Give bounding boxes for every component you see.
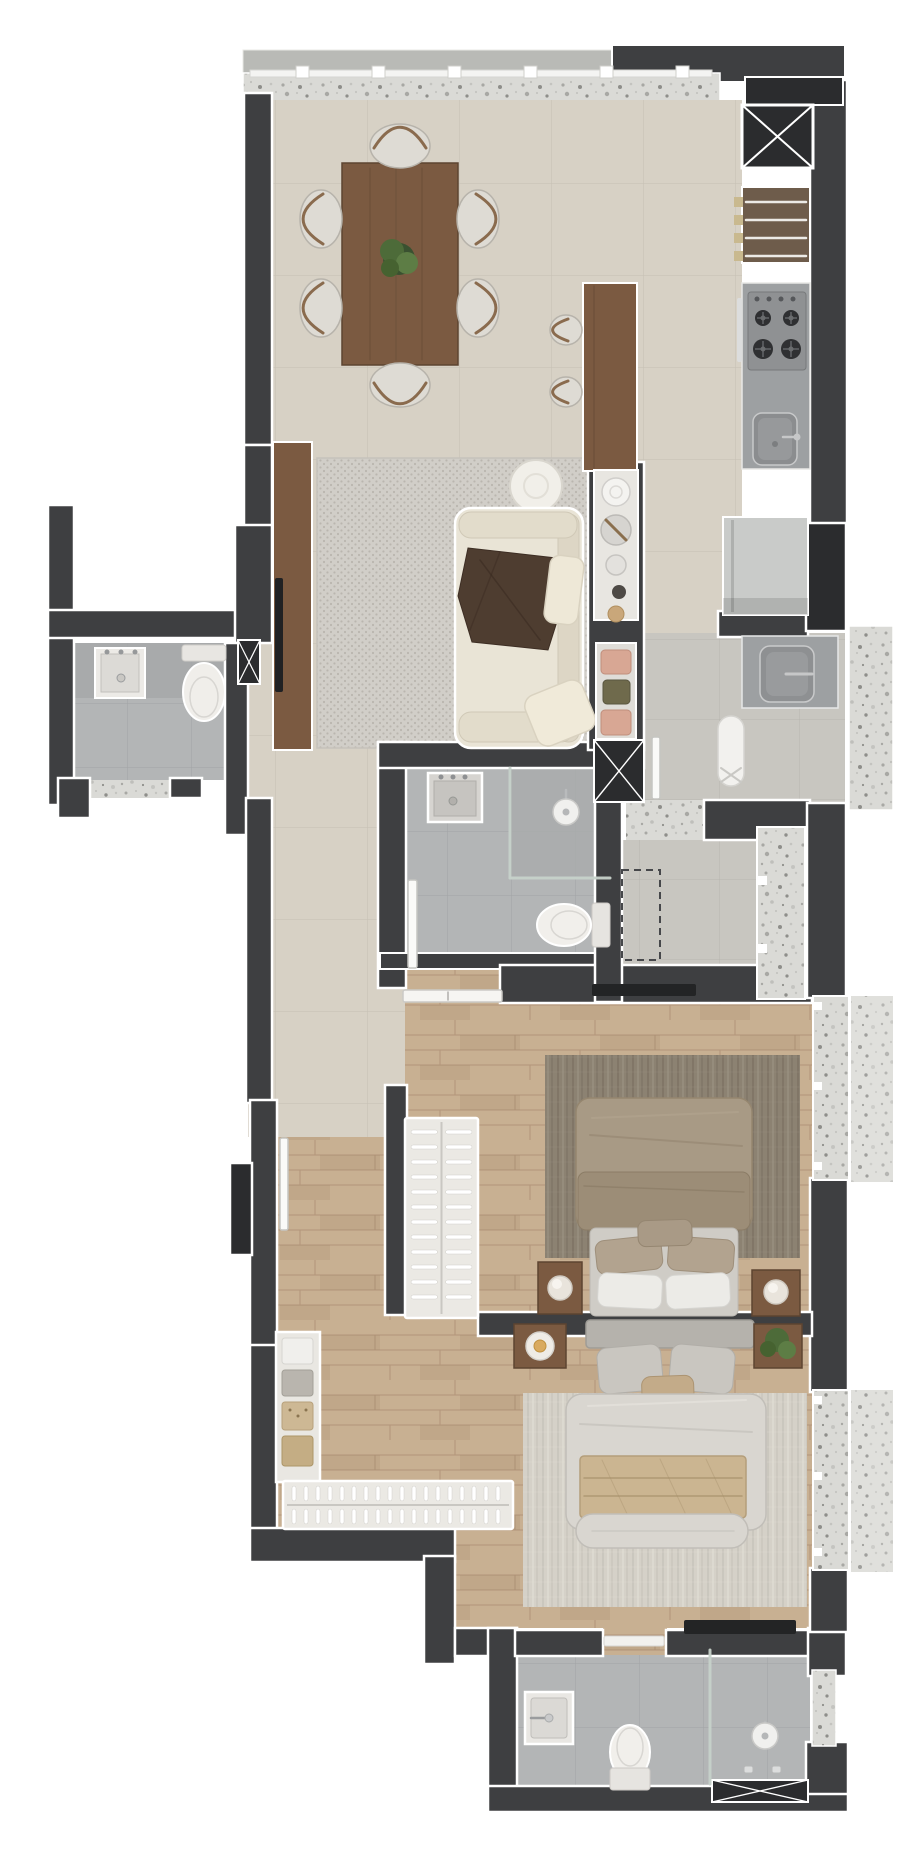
lavabo-faucet-1: [105, 650, 110, 655]
wall-dark-cabinet: [806, 523, 846, 631]
burner-1: [755, 310, 771, 326]
burner-2: [783, 310, 799, 326]
wall-bed2-left: [250, 1345, 277, 1535]
burner-4: [781, 339, 801, 359]
clothes-stack-dot-2: [297, 1415, 300, 1418]
bath3-shower-dot: [762, 1733, 769, 1740]
side-pouf: [510, 460, 562, 512]
window-mullion-1: [296, 66, 309, 78]
wall-right-bed2-low: [810, 1568, 848, 1632]
island-counter: [583, 283, 637, 471]
wall-bed2-bottom-1: [515, 1630, 603, 1656]
clothes-stack-dot-1: [289, 1409, 292, 1412]
oven-handle: [737, 298, 742, 362]
dining-chair-right-2: [457, 279, 499, 337]
dining-chair-right-1: [457, 190, 499, 248]
shaft-bath3: [712, 1780, 808, 1802]
floor-plan-page: [0, 0, 900, 1869]
wall-elevator-lobby: [745, 77, 843, 105]
tv-bed1: [592, 984, 696, 996]
plant-bed2-b: [778, 1341, 796, 1359]
window-bed2-tick-3: [813, 1548, 822, 1556]
kitchen-sink-basin: [758, 418, 792, 460]
wall-lavabo-bottom-left: [58, 778, 90, 818]
stove-knob-2: [767, 297, 772, 302]
vent-tab-1: [734, 197, 743, 207]
closet-rack-bed1: [405, 1118, 478, 1318]
wall-bath3-right-top: [808, 1628, 846, 1676]
balcony-window-band: [250, 70, 712, 77]
wall-lavabo-left: [48, 505, 74, 805]
bath2-toilet-tank: [592, 903, 610, 947]
window-bed2-tick-1: [813, 1396, 822, 1404]
towel-pink-2: [601, 710, 631, 735]
shaft-mid: [594, 740, 644, 802]
corridor-door-leaf: [652, 737, 660, 799]
window-bed1-tick-1: [813, 1002, 822, 1010]
floor-plan: [0, 0, 900, 1869]
window-bed1-tick-3: [813, 1162, 822, 1170]
fridge-shadow: [723, 598, 808, 615]
wall-left-mid: [244, 445, 272, 533]
lavabo-drain: [117, 674, 125, 682]
jar-dark: [612, 585, 626, 599]
bath3-toilet-tank: [610, 1768, 650, 1790]
stove-knob-3: [779, 297, 784, 302]
stove: [748, 292, 806, 370]
light-well: [757, 827, 805, 999]
vent-louver: [742, 187, 810, 263]
bed1-pillow-white-left: [597, 1272, 663, 1309]
stove-knob-4: [791, 297, 796, 302]
bed1-pillow-small: [638, 1219, 693, 1247]
bath2-shower-dot: [563, 809, 570, 816]
bath2-door-leaf: [408, 880, 417, 968]
dining-chair-bottom: [370, 363, 430, 407]
plant-bed2-c: [760, 1341, 776, 1357]
wall-hall-left: [246, 798, 272, 1103]
bath3-valve-1: [744, 1766, 753, 1773]
window-bed1-tick-2: [813, 1082, 822, 1090]
window-bed2-tick-2: [813, 1472, 822, 1480]
bowl-small: [606, 555, 626, 575]
bath2-toilet-bowl: [537, 904, 591, 946]
lavabo-toilet-tank: [182, 645, 226, 661]
window-mullion-6: [676, 66, 689, 78]
lamp-bed1-left-highlight: [552, 1279, 562, 1289]
outer-sill-bed2: [851, 1390, 893, 1572]
wall-closet-left: [595, 800, 622, 1002]
window-mullion-3: [448, 66, 461, 78]
window-mullion-4: [524, 66, 537, 78]
clothes-stack-tan: [282, 1436, 313, 1466]
sliding-door-bed1: [403, 990, 502, 1002]
wall-bed1-left: [385, 1085, 407, 1315]
lamp-bed1-right-highlight: [768, 1283, 778, 1293]
service-window: [849, 626, 893, 810]
clothes-stack-gray: [282, 1370, 313, 1396]
light-well-tick-1: [757, 876, 767, 885]
sofa-arm-top: [459, 512, 577, 538]
window-mullion-2: [372, 66, 385, 78]
jar-tan: [608, 606, 624, 622]
plate-large: [602, 478, 630, 506]
lavabo-sink-basin: [101, 654, 139, 692]
bed2-headboard: [586, 1320, 754, 1348]
bath2-faucet-2: [451, 775, 456, 780]
bath3-faucet-tap: [545, 1714, 553, 1722]
threshold-closet-room: [626, 800, 706, 840]
wall-bath3-right-bottom: [806, 1742, 848, 1794]
burner-3: [753, 339, 773, 359]
towel-olive: [603, 680, 630, 704]
centerpiece-leaves-3: [381, 259, 399, 277]
window-bath3: [812, 1670, 836, 1746]
wall-right-bed1: [810, 1178, 848, 1392]
tray-lamp-candle: [534, 1340, 546, 1352]
clothes-stack-dot-3: [305, 1409, 308, 1412]
lavabo-toilet-bowl: [183, 663, 225, 721]
door-track-bed2: [604, 1636, 664, 1646]
wall-bath2-left: [378, 742, 406, 988]
outer-sill-bed1: [851, 996, 893, 1182]
wall-bed2-bath-connector: [424, 1556, 455, 1664]
vent-tab-2: [734, 215, 743, 225]
kitchen-faucet-base: [794, 434, 801, 441]
wall-lavabo-top: [48, 610, 238, 638]
lavabo-faucet-3: [133, 650, 138, 655]
bath2-faucet-1: [439, 775, 444, 780]
stove-knob-1: [755, 297, 760, 302]
vent-tab-4: [734, 251, 743, 261]
dining-chair-left-1: [300, 190, 342, 248]
corridor-door-leaf-2: [280, 1138, 288, 1230]
lavabo-faucet-2: [119, 650, 124, 655]
threshold-lavabo: [88, 780, 176, 798]
bed1-pillow-white-right: [665, 1272, 731, 1309]
wall-lavabo-corner: [235, 525, 272, 643]
bath2-faucet-3: [463, 775, 468, 780]
dining-chair-left-2: [300, 279, 342, 337]
wall-lavabo-bottom-right: [170, 778, 202, 798]
tv-screen: [275, 578, 283, 692]
bar-stool-2: [550, 377, 582, 407]
bath3-valve-2: [772, 1766, 781, 1773]
dining-chair-top: [370, 124, 430, 168]
vent-tab-3: [734, 233, 743, 243]
light-well-tick-2: [757, 944, 767, 953]
wall-corridor-left: [250, 1100, 277, 1348]
elevator-shaft: [742, 105, 813, 168]
bath2-drain: [449, 797, 457, 805]
group-pantry: [594, 470, 638, 739]
window-mullion-5: [600, 66, 613, 78]
closet-rack-bed2: [283, 1481, 513, 1529]
bar-stool-1: [550, 315, 582, 345]
sofa-pillow-2: [543, 554, 585, 626]
towel-pink-1: [601, 650, 631, 674]
centerpiece-leaves-2: [396, 252, 418, 274]
clothes-stack-white: [282, 1338, 313, 1364]
wall-right-closet: [807, 803, 846, 998]
wall-left-niche: [230, 1163, 252, 1255]
shaft-hall: [238, 640, 260, 684]
tv-bed2: [684, 1620, 796, 1634]
wall-left-top: [244, 93, 272, 445]
kitchen-sink-drain: [772, 441, 778, 447]
